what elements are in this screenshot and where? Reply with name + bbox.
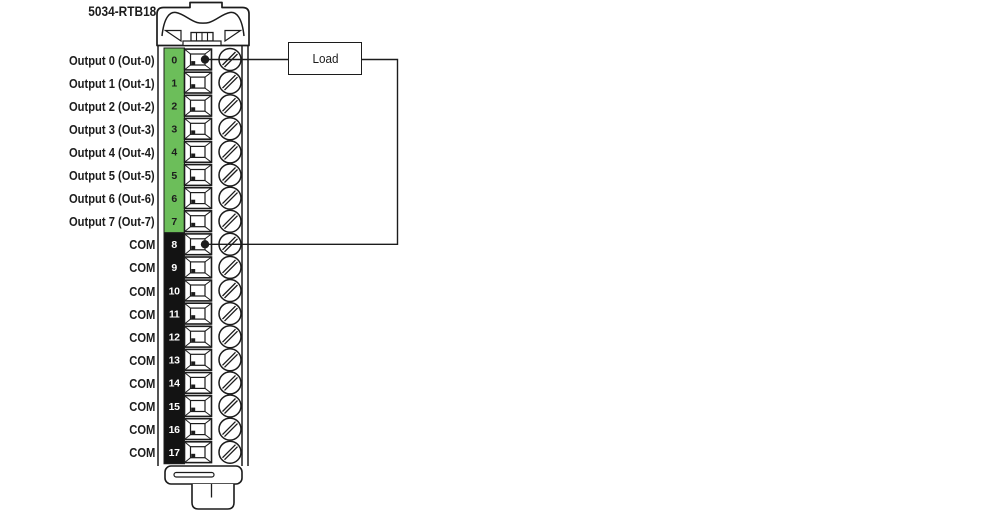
screw-terminal-icon [219,418,241,440]
load-box: Load [288,42,362,75]
screw-terminal-icon [219,118,241,140]
terminal-number: 5 [171,170,177,182]
terminal-number: 1 [171,77,177,89]
terminal-number: 14 [169,378,181,390]
connector-clamp-mark [191,408,195,412]
connector-clamp-mark [191,269,195,273]
connector-clamp-mark [191,361,195,365]
screw-terminal-icon [219,326,241,348]
connector-clamp-mark [191,200,195,204]
terminal-number: 2 [171,101,177,113]
connector-clamp-mark [191,154,195,158]
wire-connection-dot [201,240,209,248]
terminal-number: 15 [169,401,181,413]
connector-clamp-mark [191,338,195,342]
screw-terminal-icon [219,303,241,325]
terminal-number: 16 [169,424,181,436]
screw-terminal-icon [219,72,241,94]
terminal-number: 0 [171,54,177,66]
terminal-number: 9 [171,262,177,274]
screw-terminal-icon [219,395,241,417]
connector-clamp-mark [191,84,195,88]
terminal-number: 13 [169,355,181,367]
connector-clamp-mark [191,385,195,389]
connector-clamp-mark [191,107,195,111]
connector-clamp-mark [191,292,195,296]
screw-terminal-icon [219,256,241,278]
wiring-diagram: 5034-RTB18 Output 0 (Out-0)Output 1 (Out… [0,0,1000,521]
terminal-block-graphic: 01234567891011121314151617 [0,0,1000,521]
terminal-number: 8 [171,239,177,251]
connector-clamp-mark [191,61,195,65]
terminal-number: 3 [171,124,177,136]
screw-terminal-icon [219,441,241,463]
connector-clamp-mark [191,223,195,227]
mounting-tab [192,484,234,509]
connector-clamp-mark [191,454,195,458]
hinge-base [183,41,221,46]
connector-clamp-mark [191,431,195,435]
terminal-number: 11 [169,308,180,320]
screw-terminal-icon [219,164,241,186]
screw-terminal-icon [219,280,241,302]
screw-terminal-icon [219,349,241,371]
bottom-cap-slot [174,473,214,478]
terminal-number: 12 [169,332,181,344]
connector-clamp-mark [191,130,195,134]
terminal-number: 17 [169,447,181,459]
wire-connection-dot [201,55,209,63]
terminal-number: 6 [171,193,177,205]
connector-clamp-mark [191,177,195,181]
connector-clamp-mark [191,315,195,319]
terminal-number: 4 [171,147,177,159]
screw-terminal-icon [219,141,241,163]
screw-terminal-icon [219,95,241,117]
terminal-number: 7 [171,216,177,228]
output-group-strip [164,48,185,233]
screw-terminal-icon [219,187,241,209]
screw-terminal-icon [219,210,241,232]
connector-clamp-mark [191,246,195,250]
screw-terminal-icon [219,372,241,394]
terminal-number: 10 [169,285,181,297]
load-label: Load [312,51,338,66]
